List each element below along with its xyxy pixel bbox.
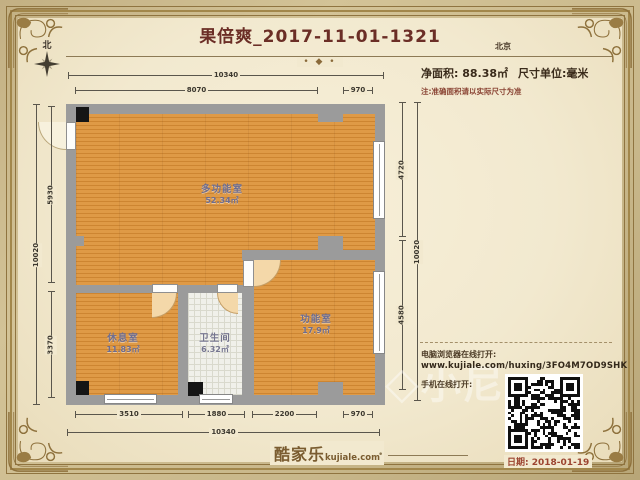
qr-code [505, 374, 583, 452]
brand-domain: kujiale.com [325, 453, 380, 463]
room-label: 卫生间 6.32㎡ [165, 330, 265, 355]
column [76, 381, 89, 395]
window [199, 394, 233, 404]
room-area: 17.9㎡ [266, 325, 366, 336]
window [373, 271, 385, 354]
dim-top-outer: 10340 [68, 70, 384, 80]
dim-bottom-inner-4: 970 [343, 409, 373, 419]
mobile-open-label: 手机在线打开: [421, 379, 472, 390]
room-name: 卫生间 [165, 330, 265, 344]
net-area-line: 净面积: 88.38㎡尺寸单位:毫米 [421, 65, 598, 81]
room-label: 多功能室 52.34㎡ [172, 181, 272, 206]
date-label: 日期: 2018-01-19 [504, 455, 592, 468]
room-name: 休息室 [73, 330, 173, 344]
window [104, 394, 157, 404]
floorplan-page: 果倍爽_2017-11-01-1321 • ◆ • 北 北京 净面积: 88.3… [0, 0, 640, 480]
entry-door-leaf [66, 122, 76, 150]
north-label: 北 [34, 38, 60, 51]
dim-top-inner-1: 8070 [75, 85, 318, 95]
unit-label: 尺寸单位:毫米 [518, 67, 588, 80]
brand-logo: 酷家乐kujiale.com [270, 441, 384, 465]
dim-left-inner-2: 3370 [46, 291, 56, 398]
footer-bullet: • [378, 450, 383, 460]
dim-bottom-outer: 10340 [67, 427, 380, 437]
room-name: 功能室 [266, 311, 366, 325]
window [373, 141, 385, 219]
door-leaf [217, 284, 238, 293]
room-area: 11.83㎡ [73, 344, 173, 355]
dim-left-inner-1: 5930 [46, 106, 56, 283]
door-leaf [152, 284, 178, 293]
column [76, 107, 89, 122]
wall [242, 250, 254, 260]
wall-stub [318, 236, 343, 250]
dim-left-outer: 10020 [31, 104, 41, 405]
dim-top-inner-2: 970 [343, 85, 373, 95]
net-area-label: 净面积: 88.38㎡ [421, 67, 508, 80]
room-area: 52.34㎡ [172, 195, 272, 206]
door-leaf [243, 260, 254, 287]
dim-bottom-inner-3: 2200 [252, 409, 317, 419]
dim-right-inner-1: 4720 [397, 102, 407, 237]
wall [76, 285, 152, 293]
brand-name: 酷家乐 [274, 445, 325, 464]
watermark-diamond-icon: ◇ [385, 358, 421, 409]
wall [66, 104, 385, 114]
room-label: 休息室 11.83㎡ [73, 330, 173, 355]
wall-stub [318, 382, 343, 395]
footer-line [388, 455, 468, 456]
wall-stub [76, 236, 84, 246]
wall [66, 104, 76, 122]
compass-icon [34, 51, 60, 77]
dim-bottom-inner-1: 3510 [75, 409, 183, 419]
room-label: 功能室 17.9㎡ [266, 311, 366, 336]
share-url: www.kujiale.com/huxing/3FO4M7OD9SHK [421, 361, 627, 371]
dim-bottom-inner-2: 1880 [188, 409, 245, 419]
wall [66, 150, 76, 405]
wall-stub [318, 114, 343, 122]
wall [254, 250, 375, 260]
desktop-open-label: 电脑浏览器在线打开: [421, 349, 496, 360]
wall [178, 285, 217, 293]
room-area: 6.32㎡ [165, 344, 265, 355]
city-label: 北京 [440, 41, 566, 52]
dashed-separator [420, 342, 612, 343]
room-name: 多功能室 [172, 181, 272, 195]
accuracy-note: 注:准确面积请以实际尺寸为准 [421, 86, 522, 97]
